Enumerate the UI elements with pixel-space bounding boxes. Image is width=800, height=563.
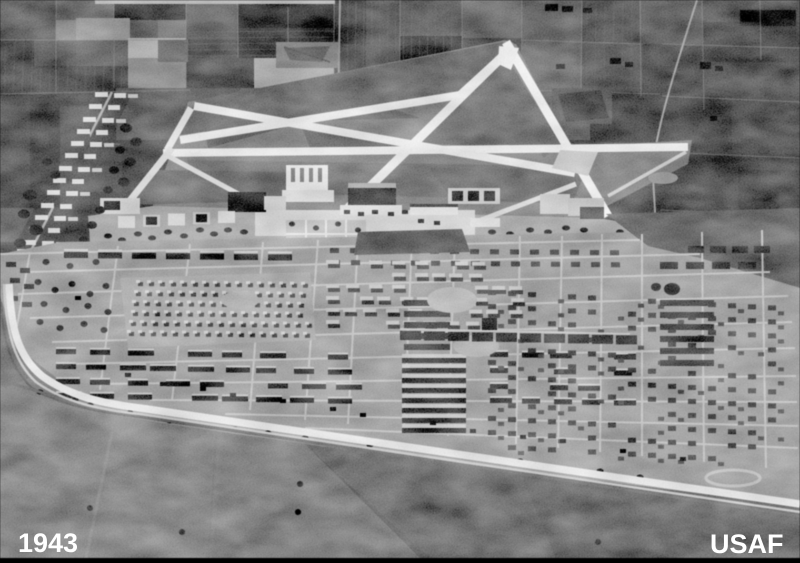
svg-text:USAF: USAF [710, 529, 784, 558]
svg-text:1943: 1943 [18, 528, 78, 558]
